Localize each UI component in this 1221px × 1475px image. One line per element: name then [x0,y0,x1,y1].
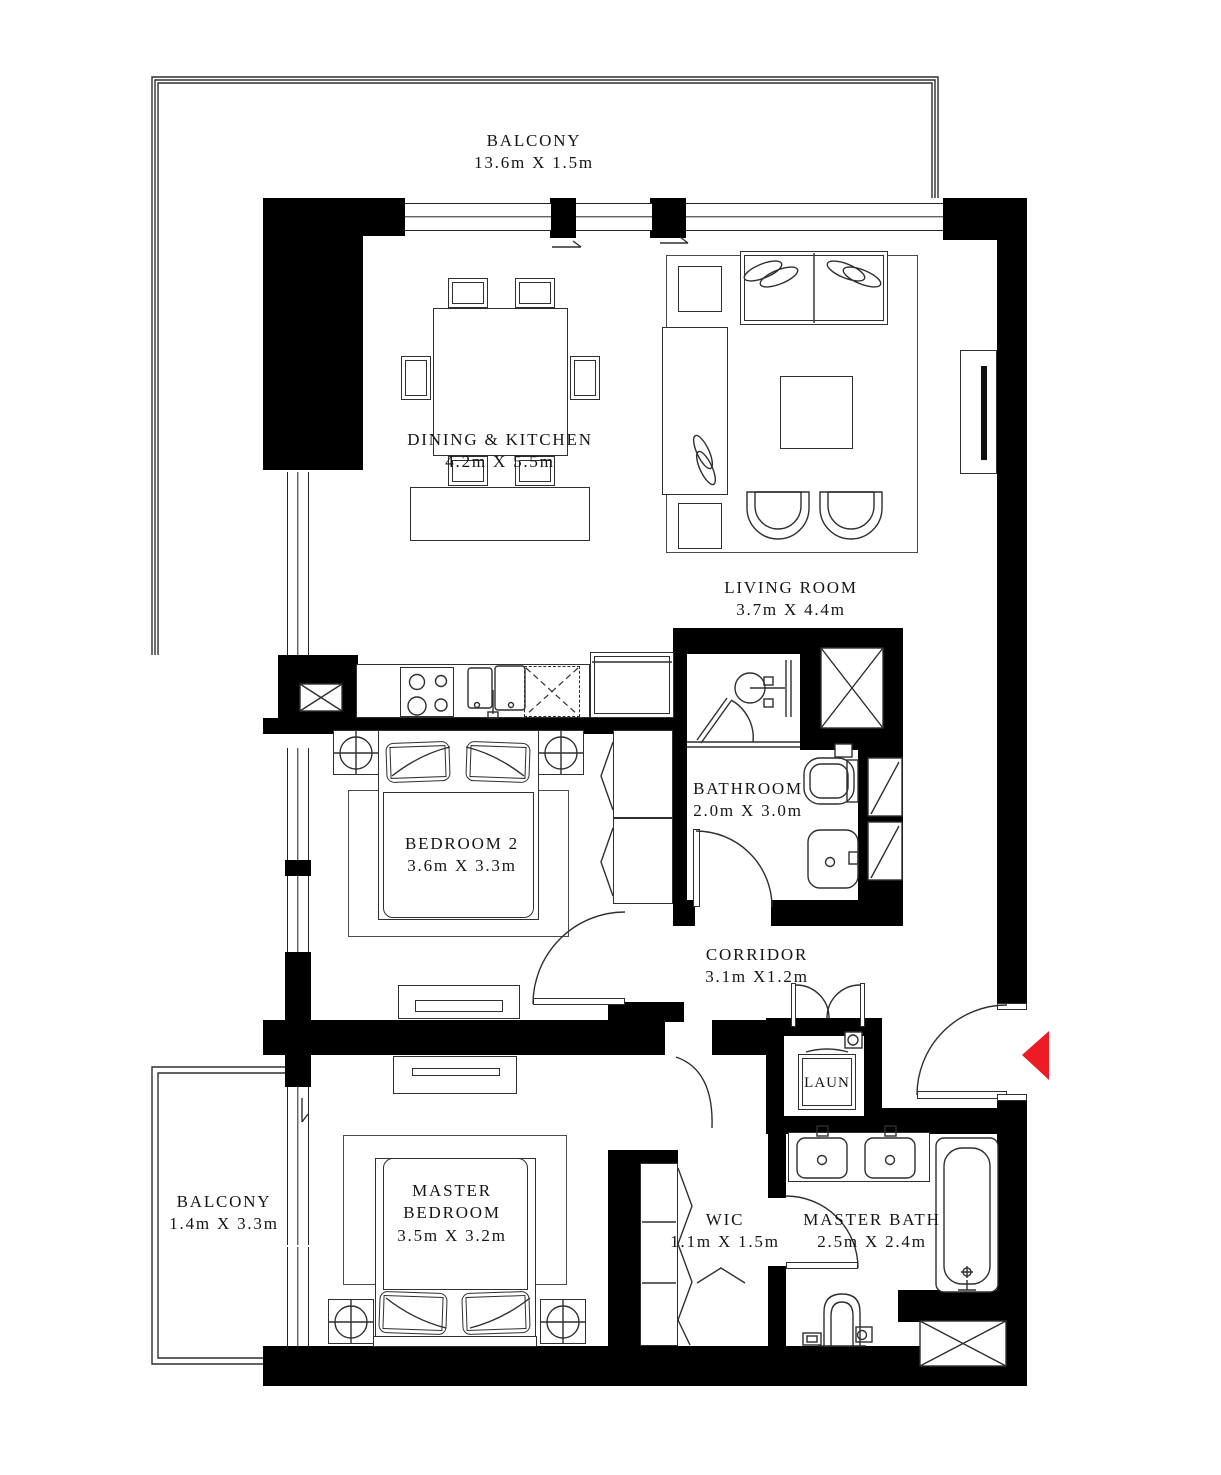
pillow [461,1291,530,1335]
nightstand [538,730,584,775]
stove [400,667,454,717]
nightstand [333,730,379,775]
room-label-balcony-left: BALCONY 1.4m X 3.3m [169,1191,279,1236]
closet-double-door-swing [796,985,860,1018]
wall [263,1020,665,1055]
room-label-living-room: LIVING ROOM 3.7m X 4.4m [724,577,858,622]
dining-chair [448,278,488,308]
wall [712,1020,770,1055]
window [287,472,309,655]
sink-icon [808,830,858,888]
wall [263,198,405,236]
room-name: BEDROOM 2 [405,833,519,855]
room-label-balcony-top: BALCONY 13.6m X 1.5m [474,130,594,175]
room-dims: 3.7m X 4.4m [724,599,858,621]
room-label-wic: WIC 1.1m X 1.5m [670,1209,780,1254]
pillow [465,741,530,783]
nightstand [328,1299,374,1344]
wardrobe [613,730,673,818]
wall [285,860,311,876]
wall [673,628,687,920]
dining-chair [515,278,555,308]
wall [768,1266,786,1346]
room-dims: 3.6m X 3.3m [405,855,519,877]
wall [771,900,903,926]
wall [263,1346,1008,1386]
vanity-counter [788,1132,930,1182]
side-table [678,503,722,549]
room-name: MASTER BEDROOM [377,1180,527,1225]
room-dims: 13.6m X 1.5m [474,152,594,174]
wall [997,1100,1027,1386]
wall [550,198,576,238]
wall [650,198,686,238]
room-name: MASTER BATH [803,1209,940,1231]
toilet-icon [804,744,858,804]
room-dims: 1.1m X 1.5m [670,1231,780,1253]
balcony-sliding-window [576,203,652,231]
pillow [385,741,450,783]
entry-door-leaf [917,1091,1007,1099]
wall [608,1002,684,1022]
wall [898,1290,1008,1322]
bathroom-door-swing [696,831,772,907]
wall [673,900,695,926]
nightstand [540,1299,586,1344]
room-label-laundry: LAUN [804,1074,850,1094]
wall [263,236,363,470]
room-name: BATHROOM [693,778,803,800]
room-name: CORRIDOR [705,944,808,966]
pillow [378,1291,447,1335]
tv [981,366,987,460]
wall [997,240,1027,1008]
window [287,748,309,860]
wall [285,1055,311,1087]
dining-chair [570,356,600,400]
room-name: LAUN [804,1074,850,1094]
room-name: BALCONY [169,1191,279,1213]
dresser-detail [415,1000,503,1012]
room-dims: 2.0m X 3.0m [693,800,803,822]
entry-door-jamb [997,1003,1027,1010]
balcony-sliding-door [287,1087,309,1245]
closet-door-leaf [860,983,865,1027]
shower-head-icon [735,660,791,717]
wall [858,748,903,914]
coffee-table [780,376,853,449]
dishwasher [524,666,580,717]
master-bedroom-door-swing [676,1057,712,1128]
bedroom2-door-leaf [533,998,625,1005]
balcony-sliding-window [686,203,943,231]
wic-wardrobe [640,1163,678,1346]
room-label-dining-kitchen: DINING & KITCHEN 4.2m X 5.5m [407,429,593,474]
shower-door [687,698,800,747]
master-bath-door-leaf [786,1262,858,1269]
side-table [678,266,722,312]
fridge [590,652,674,718]
room-label-master-bedroom: MASTER BEDROOM 3.5m X 3.2m [377,1180,527,1247]
room-dims: 1.4m X 3.3m [169,1213,279,1235]
room-label-corridor: CORRIDOR 3.1m X1.2m [705,944,808,989]
room-name: LIVING ROOM [724,577,858,599]
room-name: WIC [670,1209,780,1231]
room-dims: 2.5m X 2.4m [803,1231,940,1253]
balcony-sliding-window [405,203,551,231]
room-name: DINING & KITCHEN [407,429,593,451]
entry-door-swing [917,1005,1007,1095]
toilet-icon [803,1294,872,1346]
entry-arrow-icon [1022,1031,1049,1080]
room-label-bathroom: BATHROOM 2.0m X 3.0m [693,778,803,823]
wall [800,628,903,750]
window [287,876,309,952]
room-name: BALCONY [474,130,594,152]
wardrobe [613,818,673,904]
bathtub-icon [936,1138,998,1292]
wall [768,1130,786,1198]
window [287,1247,309,1346]
kitchen-island [410,487,590,541]
floor-plan: BALCONY 13.6m X 1.5m DINING & KITCHEN 4.… [0,0,1221,1475]
room-dims: 3.5m X 3.2m [377,1225,527,1247]
room-label-bedroom-2: BEDROOM 2 3.6m X 3.3m [405,833,519,878]
sofa [740,251,888,325]
closet-door-leaf [791,983,796,1027]
chaise-sofa [662,327,728,495]
dresser-detail [412,1068,500,1076]
tv-unit [960,350,997,474]
room-label-master-bath: MASTER BATH 2.5m X 2.4m [803,1209,940,1254]
wall [608,1150,640,1346]
bathroom-door-leaf [693,829,700,907]
headboard [373,1336,537,1347]
room-dims: 4.2m X 5.5m [407,451,593,473]
wall [943,198,1027,240]
room-dims: 3.1m X1.2m [705,966,808,988]
dining-chair [401,356,431,400]
entry-door-jamb [997,1094,1027,1101]
